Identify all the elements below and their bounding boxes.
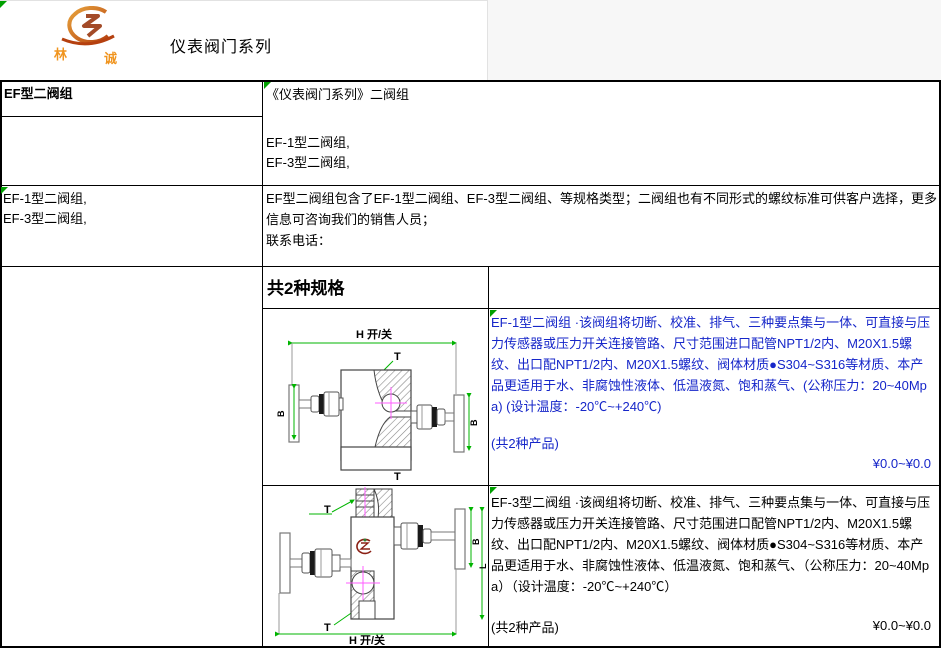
model-line: EF-3型二阀组,	[266, 153, 350, 173]
dim-h-label: H 开/关	[349, 633, 385, 645]
dim-h-label: H 开/关	[356, 327, 392, 341]
row-divider-2	[0, 266, 941, 267]
product-2-price: ¥0.0~¥0.0	[873, 618, 931, 633]
model-line: EF-3型二阀组,	[3, 209, 87, 229]
page-title: 仪表阀门系列	[170, 33, 272, 57]
dim-b-label: B	[276, 410, 286, 417]
model-line: EF-1型二阀组,	[266, 133, 350, 153]
row-divider-left-only	[0, 116, 262, 117]
row-divider-1	[0, 185, 941, 186]
t-port-label: T	[394, 351, 401, 363]
row-divider-4	[262, 485, 941, 486]
t-port-label: T	[324, 622, 331, 634]
table-subcol-divider	[488, 267, 489, 646]
cell-model-list-left: EF-1型二阀组, EF-3型二阀组,	[3, 189, 87, 229]
table-border-top	[0, 80, 941, 82]
comment-marker	[0, 1, 7, 8]
table-border-left	[0, 80, 2, 648]
cell-series-title: 《仪表阀门系列》二阀组	[266, 85, 409, 105]
t-port-label: T	[394, 471, 401, 483]
table-border-bottom	[0, 646, 941, 648]
brand-char-lin: 林	[54, 44, 67, 63]
product-sheet-page: 林 诚 仪表阀门系列 EF型二阀组 《仪表阀门系列》二阀组 EF-1型二阀组, …	[0, 0, 941, 657]
product-2-footer: (共2种产品) ¥0.0~¥0.0	[491, 618, 931, 638]
dim-b-label: B	[469, 419, 479, 426]
model-line: EF-1型二阀组,	[3, 189, 87, 209]
dim-b-label: B	[471, 538, 481, 545]
contact-label: 联系电话：	[266, 231, 331, 251]
spec-count-header: 共2种规格	[267, 274, 344, 299]
product-1-count-note: (共2种产品)	[491, 434, 559, 454]
product-diagram-2: T T	[264, 487, 487, 645]
header-empty-area	[488, 0, 941, 80]
product-1-description: EF-1型二阀组 ·该阀组将切断、校准、排气、三种要点集与一体、可直接与压力传感…	[491, 312, 935, 417]
product-2-count-note: (共2种产品)	[491, 620, 559, 635]
cell-series-description: EF型二阀组包含了EF-1型二阀组、EF-3型二阀组、等规格类型；二阀组也有不同…	[266, 188, 937, 230]
product-2-description: EF-3型二阀组 ·该阀组将切断、校准、排气、三种要点集与一体、可直接与压力传感…	[491, 492, 935, 597]
cell-category-title: EF型二阀组	[4, 84, 73, 104]
company-logo: 林 诚	[48, 6, 138, 64]
product-1-price: ¥0.0~¥0.0	[491, 456, 931, 471]
dim-l-label: L	[478, 563, 487, 569]
cell-model-list: EF-1型二阀组, EF-3型二阀组,	[266, 133, 350, 173]
brand-char-cheng: 诚	[104, 48, 117, 67]
table-col-divider	[262, 80, 263, 646]
product-diagram-1: H 开/关 T T B	[264, 310, 487, 484]
row-divider-3	[262, 308, 941, 309]
